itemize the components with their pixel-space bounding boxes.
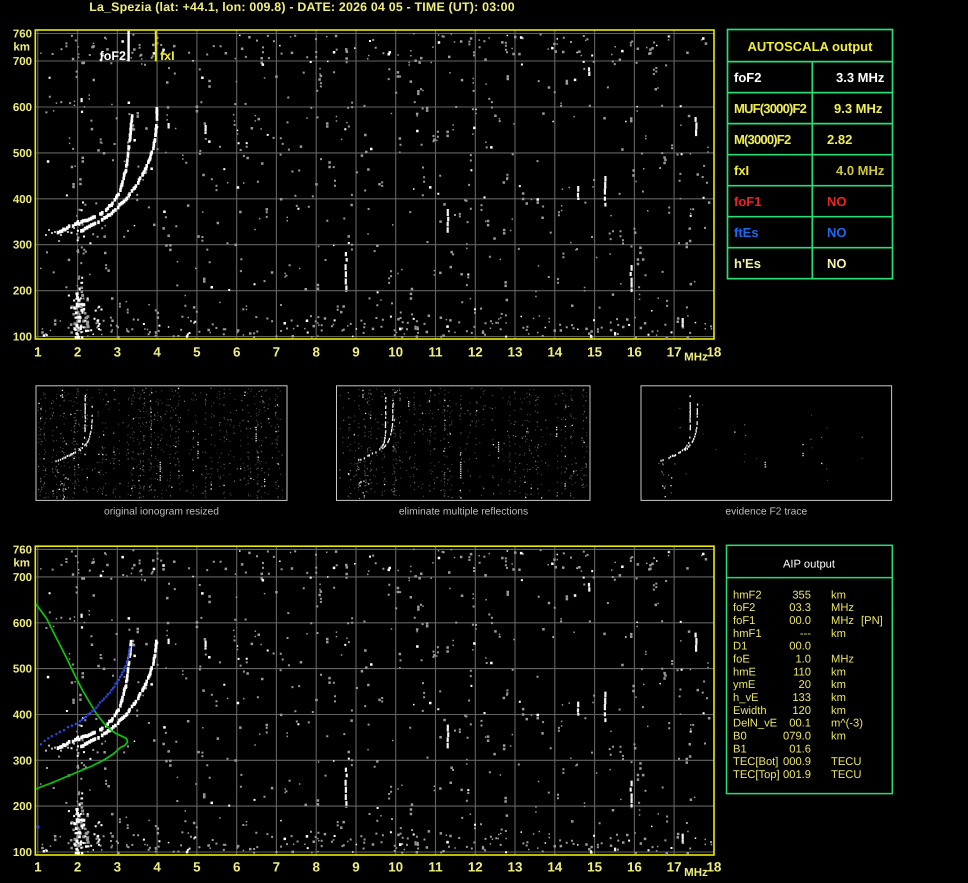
svg-text:760: 760 (13, 544, 32, 556)
svg-text:600: 600 (13, 102, 32, 114)
svg-text:MHz: MHz (831, 602, 854, 614)
svg-text:km: km (831, 589, 846, 601)
svg-text:12: 12 (468, 345, 483, 360)
svg-text:14: 14 (547, 345, 562, 360)
svg-text:7: 7 (273, 860, 280, 875)
svg-text:10: 10 (388, 860, 403, 875)
svg-text:001.9: 001.9 (783, 769, 811, 781)
svg-text:15: 15 (587, 860, 602, 875)
svg-text:00.0: 00.0 (789, 641, 811, 653)
svg-text:2.82: 2.82 (827, 132, 852, 147)
svg-text:km: km (831, 666, 846, 678)
svg-text:9: 9 (352, 860, 359, 875)
svg-text:B0: B0 (733, 731, 747, 743)
svg-text:m^(-3): m^(-3) (831, 718, 863, 730)
svg-text:NO: NO (827, 194, 847, 209)
svg-text:B1: B1 (733, 743, 747, 755)
svg-text:---: --- (800, 628, 811, 640)
svg-text:00.1: 00.1 (789, 718, 811, 730)
svg-text:foF1: foF1 (734, 194, 761, 209)
svg-text:1.0: 1.0 (795, 654, 811, 666)
svg-text:foF2: foF2 (733, 602, 755, 614)
svg-text:18: 18 (706, 345, 721, 360)
svg-text:DelN_vE: DelN_vE (733, 718, 777, 730)
svg-text:000.9: 000.9 (783, 756, 811, 768)
svg-text:9.3 MHz: 9.3 MHz (834, 101, 883, 116)
svg-text:hmF1: hmF1 (733, 628, 762, 640)
svg-text:11: 11 (428, 860, 443, 875)
svg-text:100: 100 (13, 847, 32, 859)
svg-text:4.0 MHz: 4.0 MHz (836, 163, 885, 178)
svg-text:11: 11 (428, 345, 443, 360)
svg-text:ymE: ymE (733, 679, 755, 691)
svg-text:km: km (831, 628, 846, 640)
svg-text:300: 300 (13, 240, 32, 252)
svg-text:La_Spezia (lat: +44.1, lon: 00: La_Spezia (lat: +44.1, lon: 009.8) - DAT… (89, 0, 515, 14)
svg-text:16: 16 (627, 345, 642, 360)
svg-text:NO: NO (827, 225, 847, 240)
svg-text:600: 600 (13, 618, 32, 630)
svg-text:355: 355 (792, 589, 811, 601)
svg-text:500: 500 (13, 664, 32, 676)
svg-text:700: 700 (13, 56, 32, 68)
svg-text:01.6: 01.6 (789, 743, 811, 755)
svg-text:3: 3 (114, 345, 121, 360)
svg-text:20: 20 (799, 679, 811, 691)
svg-text:foF2: foF2 (734, 70, 761, 85)
svg-text:D1: D1 (733, 641, 747, 653)
svg-text:400: 400 (13, 194, 32, 206)
svg-text:hmE: hmE (733, 666, 756, 678)
svg-text:AIP output: AIP output (783, 559, 836, 571)
svg-text:18: 18 (706, 860, 721, 875)
svg-text:500: 500 (13, 148, 32, 160)
svg-text:MHz: MHz (831, 615, 854, 627)
svg-text:15: 15 (587, 345, 602, 360)
svg-text:h_vE: h_vE (733, 692, 759, 704)
svg-text:10: 10 (388, 345, 403, 360)
svg-text:MHz: MHz (831, 654, 854, 666)
svg-text:fxI: fxI (160, 49, 175, 63)
svg-text:14: 14 (547, 860, 562, 875)
svg-text:13: 13 (508, 345, 523, 360)
svg-text:2: 2 (74, 345, 81, 360)
svg-text:3: 3 (114, 860, 121, 875)
svg-text:MHz: MHz (684, 867, 708, 879)
svg-text:km: km (831, 692, 846, 704)
svg-text:6: 6 (233, 860, 240, 875)
svg-text:6: 6 (233, 345, 240, 360)
svg-text:3.3 MHz: 3.3 MHz (836, 70, 885, 85)
svg-text:ftEs: ftEs (734, 225, 759, 240)
svg-text:foF2: foF2 (100, 49, 126, 63)
svg-text:original ionogram resized: original ionogram resized (104, 507, 219, 518)
svg-text:03.3: 03.3 (789, 602, 811, 614)
svg-text:7: 7 (273, 345, 280, 360)
svg-text:12: 12 (468, 860, 483, 875)
svg-text:TEC[Top]: TEC[Top] (733, 769, 780, 781)
svg-text:km: km (831, 705, 846, 717)
svg-text:NO: NO (827, 256, 847, 271)
svg-text:4: 4 (153, 860, 161, 875)
svg-text:110: 110 (793, 666, 811, 678)
svg-text:700: 700 (13, 572, 32, 584)
svg-text:km: km (13, 557, 30, 569)
svg-text:h'Es: h'Es (734, 256, 761, 271)
svg-text:hmF2: hmF2 (733, 589, 762, 601)
svg-text:9: 9 (352, 345, 359, 360)
svg-text:133: 133 (792, 692, 811, 704)
svg-text:km: km (831, 731, 846, 743)
svg-text:120: 120 (792, 705, 811, 717)
svg-text:5: 5 (193, 345, 201, 360)
svg-text:TECU: TECU (831, 769, 861, 781)
svg-text:4: 4 (153, 345, 161, 360)
svg-text:00.0: 00.0 (789, 615, 811, 627)
svg-text:MHz: MHz (684, 352, 708, 364)
svg-text:evidence F2 trace: evidence F2 trace (725, 507, 807, 518)
svg-text:17: 17 (667, 345, 682, 360)
svg-text:100: 100 (13, 332, 32, 344)
svg-text:eliminate multiple reflections: eliminate multiple reflections (399, 507, 528, 518)
svg-text:8: 8 (312, 860, 320, 875)
svg-text:1: 1 (34, 860, 42, 875)
svg-text:foE: foE (733, 654, 750, 666)
svg-text:760: 760 (13, 29, 32, 41)
svg-text:km: km (13, 42, 30, 54)
svg-text:200: 200 (13, 801, 32, 813)
svg-text:079.0: 079.0 (783, 731, 811, 743)
svg-text:1: 1 (34, 345, 42, 360)
svg-text:foF1: foF1 (733, 615, 755, 627)
svg-text:200: 200 (13, 286, 32, 298)
svg-text:8: 8 (312, 345, 320, 360)
svg-text:16: 16 (627, 860, 642, 875)
svg-text:AUTOSCALA output: AUTOSCALA output (748, 39, 874, 54)
svg-text:2: 2 (74, 860, 81, 875)
svg-text:fxI: fxI (734, 163, 749, 178)
svg-text:[PN]: [PN] (861, 615, 883, 627)
svg-text:400: 400 (13, 710, 32, 722)
svg-text:Ewidth: Ewidth (733, 705, 767, 717)
svg-text:TECU: TECU (831, 756, 861, 768)
svg-text:MUF(3000)F2: MUF(3000)F2 (734, 101, 807, 116)
svg-text:5: 5 (193, 860, 201, 875)
svg-text:km: km (831, 679, 846, 691)
svg-text:17: 17 (667, 860, 682, 875)
svg-text:TEC[Bot]: TEC[Bot] (733, 756, 778, 768)
svg-text:M(3000)F2: M(3000)F2 (734, 132, 791, 147)
svg-text:13: 13 (508, 860, 523, 875)
svg-text:300: 300 (13, 755, 32, 767)
